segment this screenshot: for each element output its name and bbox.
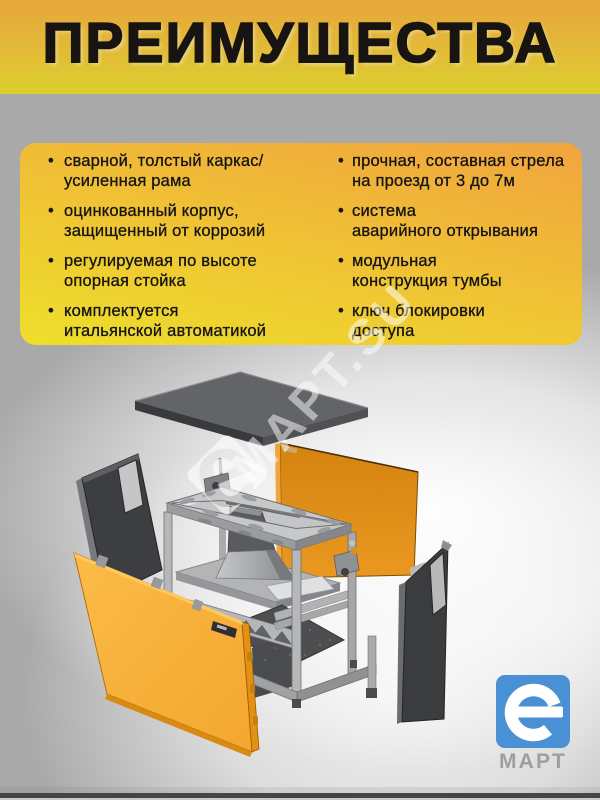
svg-text:МАРТ: МАРТ bbox=[499, 750, 567, 773]
